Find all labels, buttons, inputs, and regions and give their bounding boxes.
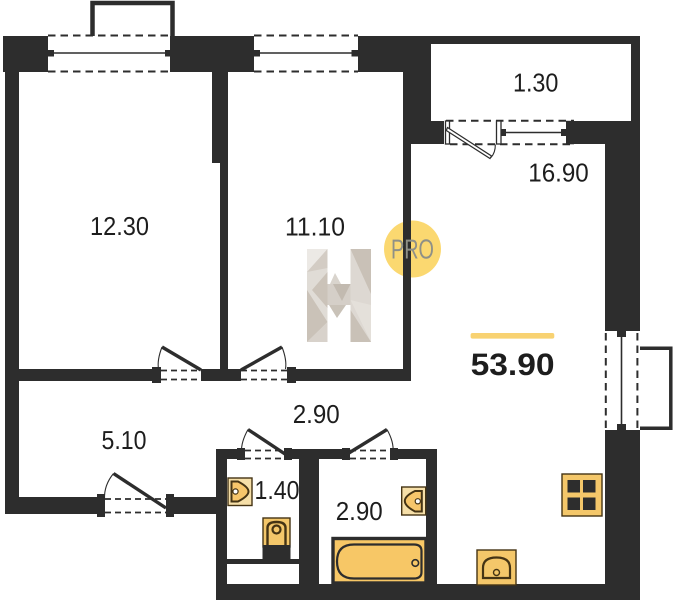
svg-text:16.90: 16.90 [528, 158, 589, 188]
svg-text:PRO: PRO [391, 234, 434, 265]
svg-text:11.10: 11.10 [285, 212, 345, 242]
svg-text:5.10: 5.10 [102, 425, 147, 455]
svg-text:2.90: 2.90 [336, 496, 383, 526]
svg-text:53.90: 53.90 [471, 347, 555, 382]
svg-text:2.90: 2.90 [293, 399, 340, 429]
svg-text:12.30: 12.30 [90, 211, 149, 241]
svg-text:1.40: 1.40 [255, 475, 300, 505]
svg-text:1.30: 1.30 [513, 68, 559, 98]
